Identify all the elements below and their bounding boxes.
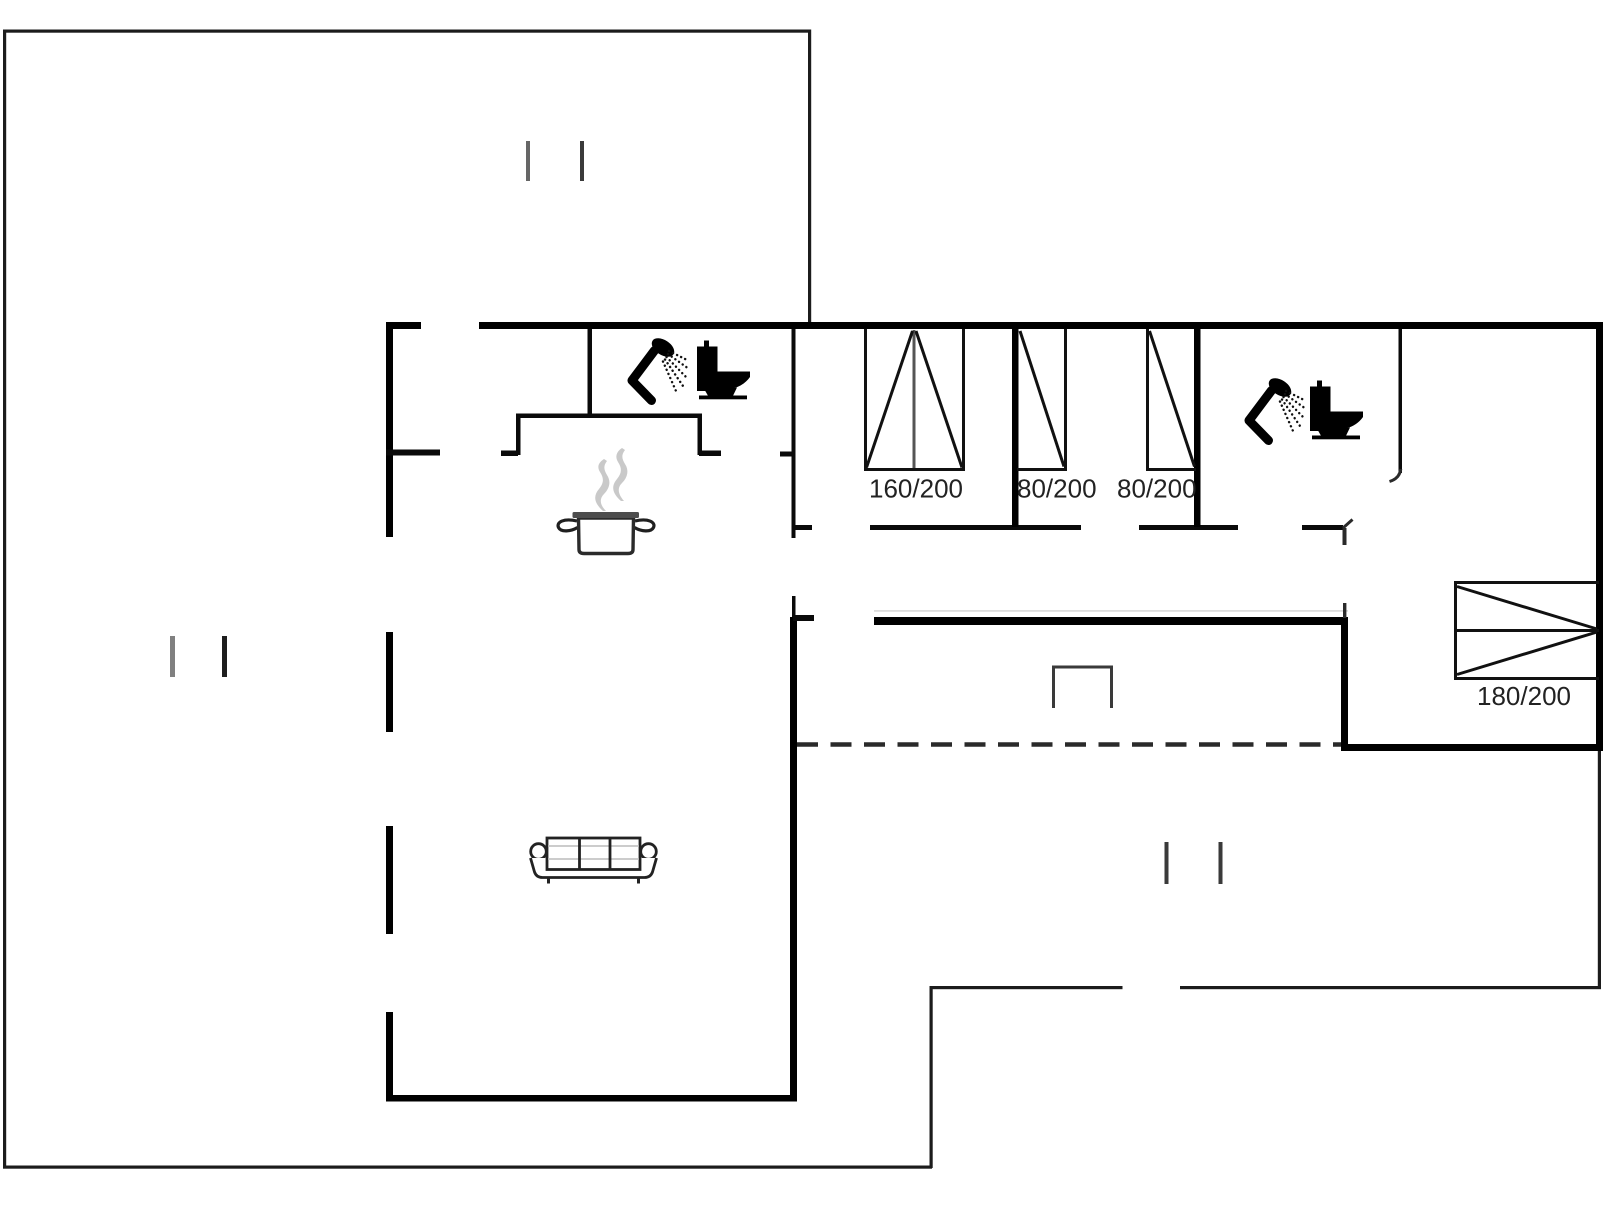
svg-text:80/200: 80/200	[1017, 474, 1097, 504]
svg-text:180/200: 180/200	[1477, 681, 1571, 711]
svg-text:80/200: 80/200	[1117, 474, 1197, 504]
svg-text:160/200: 160/200	[869, 474, 963, 504]
